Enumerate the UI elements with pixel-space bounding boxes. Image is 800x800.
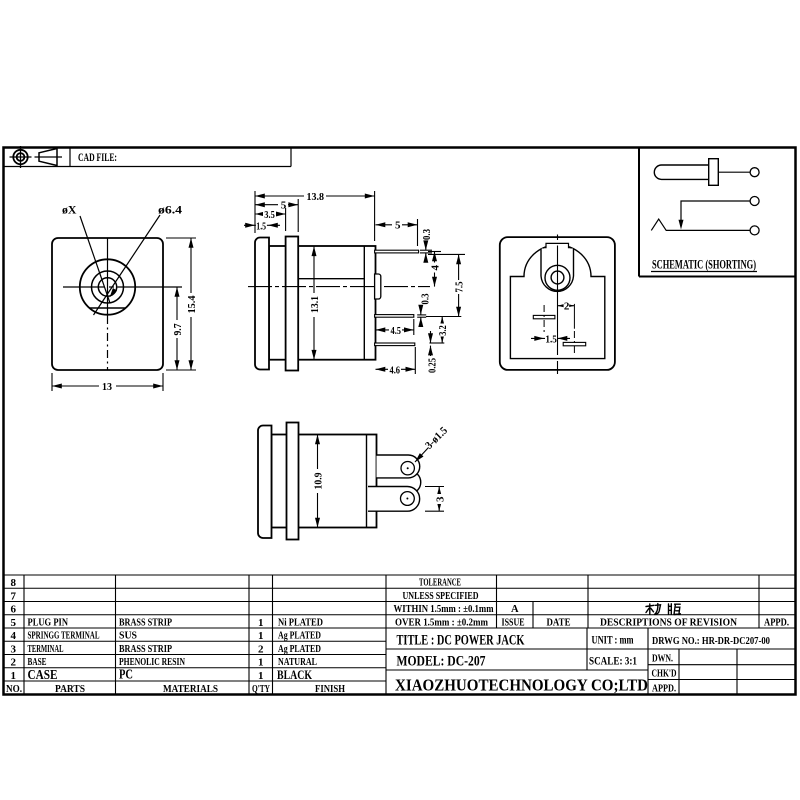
svg-text:3: 3 — [434, 496, 446, 502]
svg-text:3.2: 3.2 — [437, 325, 449, 336]
svg-text:2: 2 — [564, 301, 570, 313]
svg-text:3-ø1.5: 3-ø1.5 — [423, 424, 450, 451]
svg-text:Q'TY: Q'TY — [252, 684, 271, 695]
svg-text:MATERIALS: MATERIALS — [163, 683, 218, 695]
svg-text:BRASS STRIP: BRASS STRIP — [119, 616, 172, 628]
svg-text:5: 5 — [11, 617, 17, 629]
svg-text:1.5: 1.5 — [545, 333, 557, 345]
svg-text:0.3: 0.3 — [421, 229, 433, 240]
svg-text:1: 1 — [258, 670, 264, 682]
svg-text:1: 1 — [258, 657, 264, 669]
svg-text:13: 13 — [102, 381, 112, 393]
svg-text:1: 1 — [258, 617, 264, 629]
svg-text:øX: øX — [62, 203, 77, 217]
svg-text:9.7: 9.7 — [172, 323, 184, 335]
svg-text:0.3: 0.3 — [419, 293, 431, 304]
svg-text:UNLESS SPECIFIED: UNLESS SPECIFIED — [403, 591, 479, 602]
svg-text:TOLERANCE: TOLERANCE — [419, 578, 461, 589]
svg-text:OVER 1.5mm : ±0.2mm: OVER 1.5mm : ±0.2mm — [395, 618, 488, 629]
svg-text:DATE: DATE — [547, 618, 571, 629]
svg-text:MODEL: DC-207: MODEL: DC-207 — [397, 653, 486, 669]
svg-text:PC: PC — [119, 668, 133, 683]
svg-text:WITHIN 1.5mm : ±0.1mm: WITHIN 1.5mm : ±0.1mm — [394, 604, 494, 615]
svg-text:4.6: 4.6 — [390, 364, 401, 376]
svg-text:FINISH: FINISH — [315, 683, 345, 695]
svg-text:BLACK: BLACK — [277, 667, 313, 682]
svg-text:2: 2 — [11, 657, 17, 669]
svg-text:SPRINGG TERMINAL: SPRINGG TERMINAL — [28, 630, 100, 642]
svg-text:CASE: CASE — [28, 668, 58, 683]
svg-text:4.5: 4.5 — [391, 325, 402, 337]
svg-text:15.4: 15.4 — [186, 295, 198, 313]
svg-text:3: 3 — [11, 643, 17, 655]
svg-text:APPD.: APPD. — [652, 684, 676, 695]
svg-text:DESCRIPTIONS OF REVISION: DESCRIPTIONS OF REVISION — [600, 618, 737, 629]
svg-text:13.8: 13.8 — [307, 191, 325, 203]
svg-text:PLUG PIN: PLUG PIN — [28, 616, 69, 628]
svg-text:UNIT : mm: UNIT : mm — [592, 633, 634, 647]
svg-text:PARTS: PARTS — [55, 683, 85, 695]
svg-text:BRASS STRIP: BRASS STRIP — [119, 643, 172, 655]
svg-text:10.9: 10.9 — [313, 472, 325, 489]
svg-text:NO.: NO. — [6, 684, 22, 695]
svg-text:1: 1 — [258, 630, 264, 642]
svg-text:0.25: 0.25 — [426, 358, 438, 373]
svg-text:XIAOZHUOTECHNOLOGY CO;LTD: XIAOZHUOTECHNOLOGY CO;LTD — [395, 676, 648, 695]
svg-text:A: A — [511, 604, 519, 615]
svg-text:5: 5 — [395, 220, 401, 232]
svg-text:DWN.: DWN. — [652, 654, 673, 665]
svg-text:Ni PLATED: Ni PLATED — [278, 616, 323, 628]
svg-text:2: 2 — [258, 643, 264, 655]
svg-text:TERMINAL: TERMINAL — [28, 643, 64, 655]
svg-text:4: 4 — [430, 265, 442, 271]
svg-text:CAD FILE:: CAD FILE: — [78, 150, 117, 164]
svg-text:7: 7 — [11, 590, 17, 602]
svg-text:Ag PLATED: Ag PLATED — [278, 630, 321, 642]
svg-text:4: 4 — [11, 630, 17, 642]
svg-text:DRWG NO.: HR-DR-DC207-00: DRWG NO.: HR-DR-DC207-00 — [652, 635, 770, 647]
svg-text:6: 6 — [11, 604, 17, 616]
svg-text:CHK'D: CHK'D — [652, 669, 677, 680]
svg-text:SCALE: 3:1: SCALE: 3:1 — [589, 656, 637, 668]
svg-text:TITLE : DC POWER JACK: TITLE : DC POWER JACK — [397, 632, 526, 648]
svg-text:3.5: 3.5 — [264, 209, 275, 221]
svg-text:1.5: 1.5 — [256, 221, 266, 233]
svg-text:PHENOLIC RESIN: PHENOLIC RESIN — [119, 656, 185, 668]
svg-text:1: 1 — [11, 670, 17, 682]
svg-text:ø6.4: ø6.4 — [158, 203, 182, 217]
svg-text:SUS: SUS — [119, 630, 137, 642]
svg-text:ISSUE: ISSUE — [502, 618, 525, 629]
svg-text:APPD.: APPD. — [764, 618, 789, 629]
svg-text:Ag PLATED: Ag PLATED — [278, 643, 321, 655]
svg-text:BASE: BASE — [28, 656, 47, 668]
svg-text:13.1: 13.1 — [309, 296, 321, 313]
svg-text:SCHEMATIC (SHORTING): SCHEMATIC (SHORTING) — [652, 258, 756, 272]
svg-text:7.5: 7.5 — [454, 281, 466, 292]
svg-text:8: 8 — [11, 577, 17, 589]
